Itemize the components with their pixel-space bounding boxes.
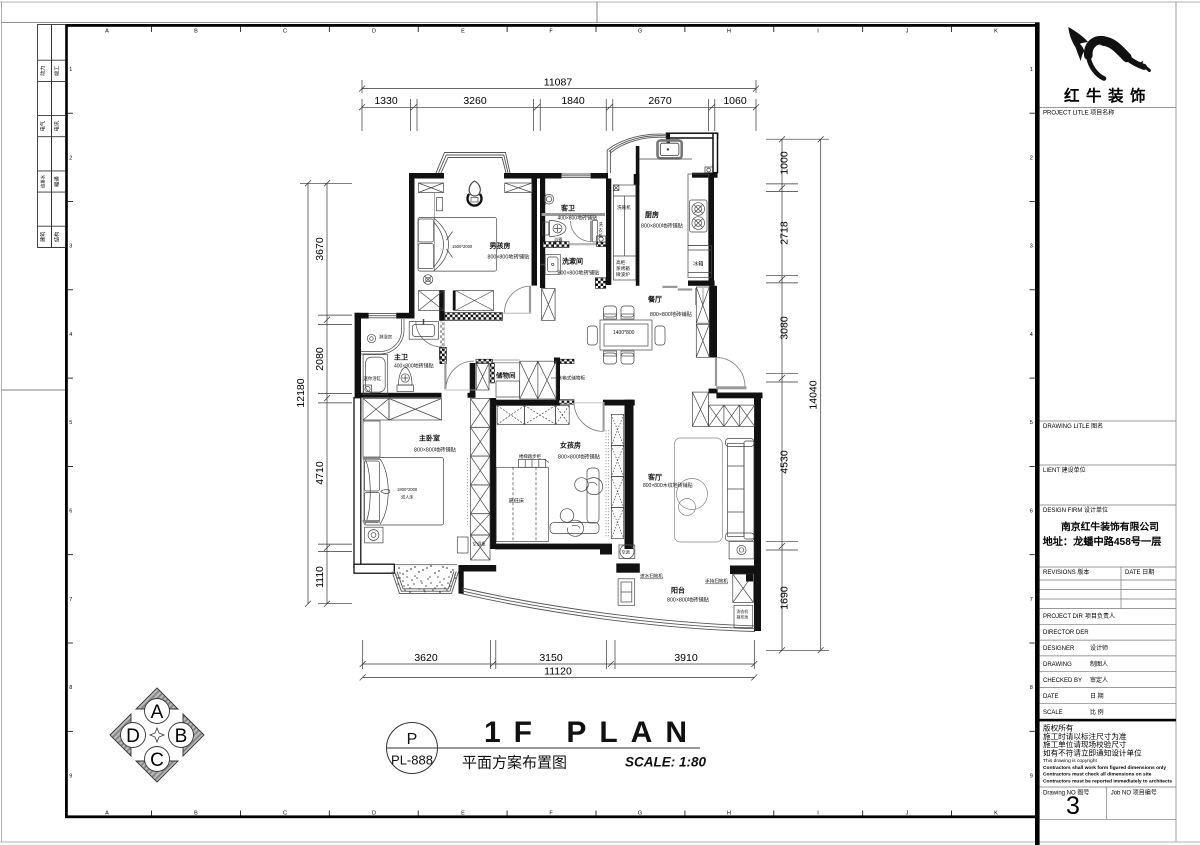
svg-text:1330: 1330 [374,95,398,107]
svg-text:高柜: 高柜 [616,259,626,266]
svg-text:4710: 4710 [314,461,326,485]
svg-text:12180: 12180 [295,378,307,407]
svg-text:2718: 2718 [779,221,791,245]
svg-text:1500*2000: 1500*2000 [452,244,473,249]
svg-text:微波炉: 微波炉 [616,271,630,278]
svg-text:P: P [407,731,418,748]
svg-text:浴霸: 浴霸 [554,236,562,243]
svg-text:南京红牛装饰有限公司: 南京红牛装饰有限公司 [1061,520,1159,533]
svg-text:DRAWING: DRAWING [1043,662,1072,668]
svg-text:6: 6 [69,509,72,515]
svg-text:800×800地砖铺贴: 800×800地砖铺贴 [414,446,457,454]
svg-text:平面方案布置图: 平面方案布置图 [462,754,567,772]
svg-text:主卫: 主卫 [394,353,408,362]
svg-text:800×800地砖铺贴: 800×800地砖铺贴 [558,453,601,461]
svg-text:8: 8 [1030,685,1033,691]
svg-text:DRAWING LITLE 图名: DRAWING LITLE 图名 [1043,422,1103,430]
svg-text:机: 机 [599,233,604,240]
svg-text:1F PLAN: 1F PLAN [484,716,700,749]
svg-text:空调: 空调 [622,550,630,555]
svg-text:1400*800: 1400*800 [613,330,635,336]
svg-text:J: J [906,811,909,817]
svg-text:14040: 14040 [808,380,820,409]
svg-text:G: G [638,29,642,35]
svg-text:1800*2000: 1800*2000 [397,487,418,492]
svg-text:4530: 4530 [779,450,791,474]
svg-text:厨房: 厨房 [645,210,659,219]
svg-text:This drawing is copyright: This drawing is copyright [1043,758,1097,764]
svg-text:比 例: 比 例 [1090,708,1104,716]
svg-text:LIENT 建设单位: LIENT 建设单位 [1043,466,1086,474]
svg-text:9: 9 [69,773,72,779]
svg-text:A: A [105,811,109,817]
svg-text:1110: 1110 [314,566,326,588]
svg-text:H: H [727,29,731,35]
svg-text:给排水: 给排水 [40,174,47,188]
svg-text:如有不符请立即通知设计单位: 如有不符请立即通知设计单位 [1043,747,1142,757]
svg-text:5: 5 [1030,420,1033,426]
svg-text:400×800地砖铺贴: 400×800地砖铺贴 [558,215,598,222]
svg-text:男孩房: 男孩房 [490,241,511,250]
svg-text:女孩房: 女孩房 [560,441,581,450]
svg-text:3670: 3670 [314,237,326,261]
svg-text:2: 2 [1030,155,1033,161]
svg-text:800×800木纹地砖铺贴: 800×800木纹地砖铺贴 [643,482,693,489]
svg-text:DATE 日期: DATE 日期 [1125,568,1154,576]
svg-text:洗漱间: 洗漱间 [562,256,583,265]
svg-text:3260: 3260 [463,95,487,107]
svg-text:暖通: 暖通 [53,176,61,187]
svg-text:制图人: 制图人 [1090,660,1108,668]
svg-text:11087: 11087 [544,77,573,89]
svg-text:3080: 3080 [779,316,791,340]
svg-text:K: K [994,811,998,817]
svg-text:3620: 3620 [414,652,438,664]
svg-text:E: E [461,29,465,35]
svg-text:楼梯踏步柜: 楼梯踏步柜 [519,453,542,460]
svg-text:7: 7 [1030,597,1033,603]
svg-text:拖布池: 拖布池 [737,615,749,620]
svg-text:地址：龙蟠中路458号一层: 地址：龙蟠中路458号一层 [1043,535,1162,548]
svg-text:E: E [461,811,465,817]
svg-text:F: F [549,29,553,35]
svg-text:淋浴房: 淋浴房 [379,334,393,341]
svg-text:1: 1 [1030,67,1033,73]
svg-text:PL-888: PL-888 [391,753,433,768]
svg-text:结构: 结构 [53,232,61,242]
svg-text:红牛装饰: 红牛装饰 [1064,86,1152,105]
svg-text:Job NO 项目编号: Job NO 项目编号 [1111,789,1157,797]
svg-text:D: D [372,29,376,35]
svg-text:蒸烤箱: 蒸烤箱 [616,265,630,272]
svg-text:J: J [906,29,909,35]
svg-text:3150: 3150 [539,652,563,664]
svg-text:800×800地砖铺贴: 800×800地砖铺贴 [641,222,684,230]
svg-text:Contractors must check all dim: Contractors must check all dimensions on… [1043,772,1152,778]
svg-text:竣工: 竣工 [53,66,61,76]
svg-text:日 期: 日 期 [1090,692,1104,700]
svg-text:主卧室: 主卧室 [419,434,440,443]
svg-text:SCALE: SCALE [1043,710,1063,716]
svg-text:800×800地砖铺贴: 800×800地砖铺贴 [558,268,601,276]
svg-text:REVISIONS 版本: REVISIONS 版本 [1043,568,1089,576]
svg-text:I: I [817,29,819,35]
svg-text:5: 5 [69,420,72,426]
svg-text:客卫: 客卫 [560,204,575,213]
svg-text:3: 3 [69,244,72,250]
svg-text:DATE: DATE [1043,694,1059,700]
svg-text:400×800地砖铺贴: 400×800地砖铺贴 [394,363,434,370]
svg-text:3: 3 [1030,244,1033,250]
svg-text:进水扫地机: 进水扫地机 [640,573,663,580]
svg-text:800×800地砖铺贴: 800×800地砖铺贴 [488,253,531,261]
svg-text:2670: 2670 [648,95,672,107]
svg-text:Contractors shall work form fi: Contractors shall work form figured dime… [1043,765,1166,771]
svg-text:1060: 1060 [723,95,747,107]
svg-text:800×800地砖铺贴: 800×800地砖铺贴 [667,596,710,604]
svg-text:Contractors must be reported i: Contractors must be reported immediately… [1043,778,1172,784]
svg-text:4: 4 [1030,332,1033,338]
svg-text:建筑: 建筑 [39,231,47,242]
svg-text:餐厅: 餐厅 [647,295,662,304]
svg-text:D: D [372,811,376,817]
svg-text:C: C [283,29,287,35]
svg-text:洗衣机: 洗衣机 [737,609,749,614]
svg-text:高低床: 高低床 [509,497,525,505]
svg-text:C: C [150,750,164,771]
svg-text:B: B [194,811,198,817]
svg-text:储物间: 储物间 [495,371,516,380]
svg-text:电讯: 电讯 [53,120,61,131]
svg-text:DESIGNER: DESIGNER [1043,646,1075,652]
svg-text:1690: 1690 [779,586,791,610]
svg-text:电气: 电气 [39,121,47,131]
svg-text:CHECKED BY: CHECKED BY [1043,678,1082,684]
svg-text:PROJECT DIR: PROJECT DIR [1043,614,1084,620]
svg-text:G: G [638,811,642,817]
svg-text:A: A [105,29,109,35]
svg-text:C: C [283,811,287,817]
svg-text:DESIGN FIRM 设计单位: DESIGN FIRM 设计单位 [1043,506,1108,514]
svg-text:冰箱式储物柜: 冰箱式储物柜 [558,375,586,382]
svg-text:6: 6 [1030,509,1033,515]
svg-text:2: 2 [69,155,72,161]
svg-text:1840: 1840 [561,95,585,107]
svg-text:设计师: 设计师 [1090,644,1108,652]
svg-text:3: 3 [1066,792,1080,820]
svg-text:SCALE: 1:80: SCALE: 1:80 [625,755,707,770]
svg-text:冰箱: 冰箱 [693,260,703,268]
svg-text:1000: 1000 [779,151,791,175]
svg-text:手持扫地机: 手持扫地机 [705,578,728,585]
svg-text:洗碗机: 洗碗机 [617,204,631,211]
svg-text:H: H [727,811,731,817]
svg-text:7: 7 [69,597,72,603]
svg-text:8: 8 [69,685,72,691]
svg-text:B: B [175,726,188,747]
svg-text:B: B [194,29,198,35]
svg-text:9: 9 [1030,773,1033,779]
svg-text:4: 4 [69,332,72,338]
svg-text:K: K [994,29,998,35]
svg-text:A: A [151,702,164,723]
svg-text:空调柜: 空调柜 [473,541,487,548]
svg-text:2080: 2080 [314,347,326,371]
svg-text:11120: 11120 [544,666,572,678]
svg-text:项目负责人: 项目负责人 [1085,612,1115,620]
svg-text:800×800地砖铺贴: 800×800地砖铺贴 [650,310,693,318]
svg-text:PROJECT LITLE 项目名称: PROJECT LITLE 项目名称 [1043,109,1114,117]
svg-text:阳台: 阳台 [671,586,685,595]
svg-text:1: 1 [69,67,72,73]
svg-text:双人床: 双人床 [401,494,414,501]
svg-text:动力: 动力 [39,66,47,76]
svg-text:迷你浴缸: 迷你浴缸 [364,375,382,382]
svg-text:3910: 3910 [674,652,698,664]
svg-text:审定人: 审定人 [1090,676,1108,684]
svg-text:DIRECTOR DER: DIRECTOR DER [1043,630,1089,636]
svg-text:客厅: 客厅 [647,473,662,482]
svg-text:D: D [126,726,140,747]
